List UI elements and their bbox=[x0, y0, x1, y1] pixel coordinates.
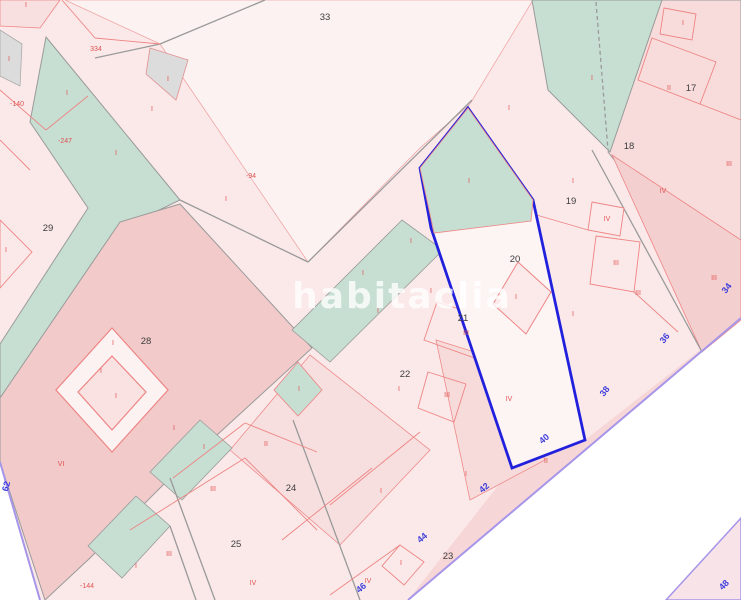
cadastral-map[interactable]: habitaclia 332928171819202122232425 334-… bbox=[0, 0, 741, 600]
lot-outline-iv bbox=[588, 202, 624, 236]
parcel-regions bbox=[0, 0, 741, 600]
road-triangle-bottom-right bbox=[666, 518, 741, 600]
cadastral-map-canvas: habitaclia 332928171819202122232425 334-… bbox=[0, 0, 741, 600]
